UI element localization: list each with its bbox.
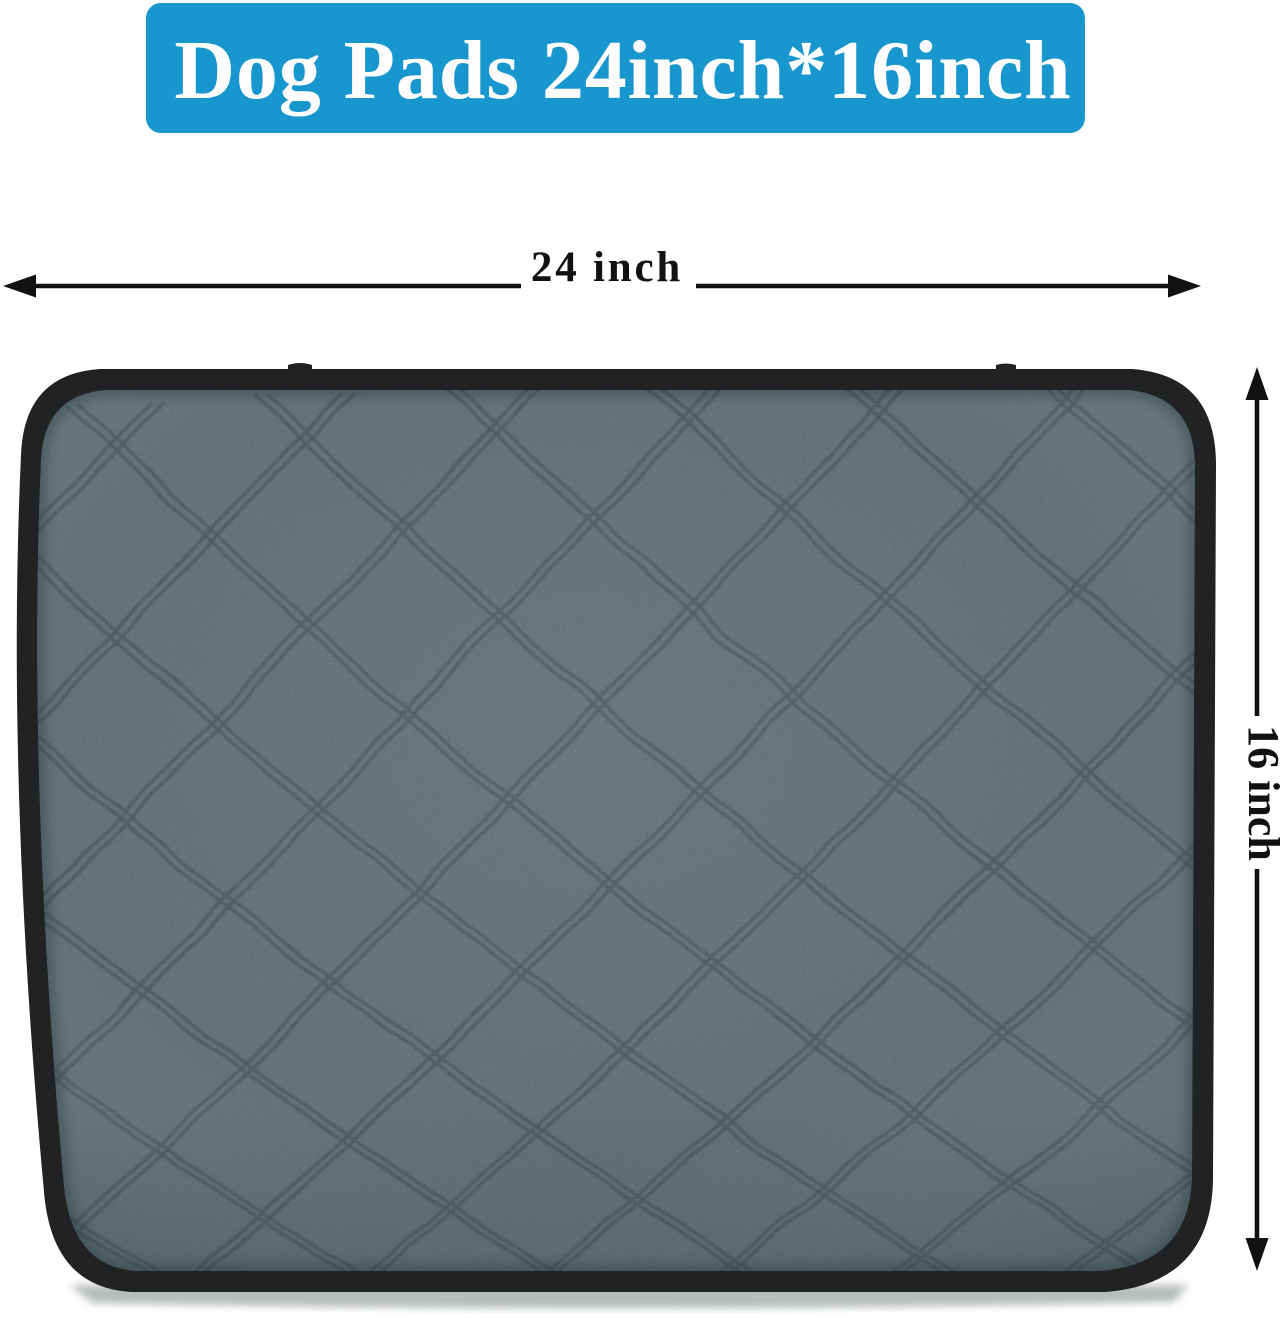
svg-text:24 inch: 24 inch xyxy=(531,244,683,291)
svg-text:Dog Pads 24inch*16inch: Dog Pads 24inch*16inch xyxy=(174,24,1071,117)
svg-text:16 inch: 16 inch xyxy=(1239,725,1282,861)
